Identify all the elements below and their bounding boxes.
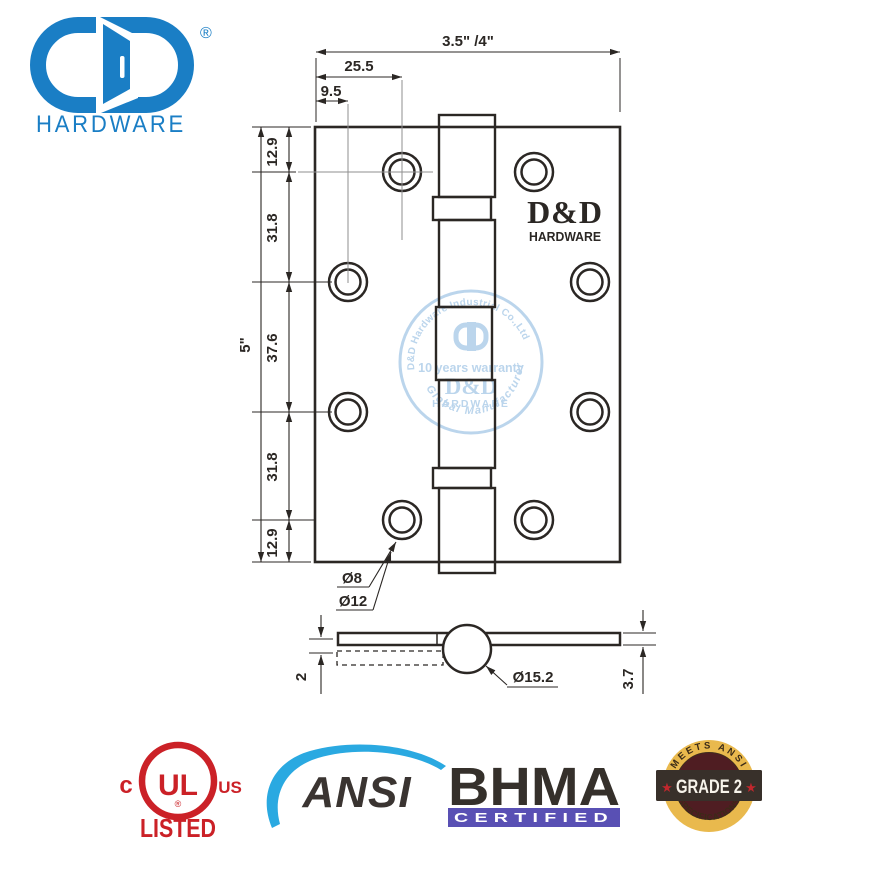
ul-mark: UL: [158, 769, 198, 802]
watermark-brand: D&D: [445, 374, 497, 399]
bhma-badge: BHMA CERTIFIED: [442, 750, 627, 835]
screw-hole: [571, 393, 609, 431]
hinge-section-view: Ø15.2 2 3.7: [293, 610, 656, 694]
grade-2-seal: MEETS ANSI SPECIFICATIONS ★ ★ GRADE 2: [654, 733, 769, 841]
ansi-label: ANSI: [301, 768, 411, 817]
screw-hole: [571, 263, 609, 301]
screw-hole: [329, 393, 367, 431]
dim-segment-4-label: 31.8: [264, 452, 281, 481]
screw-hole: [515, 501, 553, 539]
ul-suffix-us: US: [218, 778, 242, 797]
grade-2-label: GRADE 2: [676, 777, 742, 798]
dim-segment-2-label: 31.8: [264, 213, 281, 242]
hole-inner-dia-label: Ø8: [342, 570, 362, 587]
watermark-stamp: D&D Hardware Industrial Co.,Ltd Global M…: [392, 282, 548, 433]
screw-hole: [383, 501, 421, 539]
technical-drawing-page: ® HARDWARE D&D Hardware Industrial Co.,L…: [0, 0, 886, 886]
dim-25-5-label: 25.5: [344, 58, 373, 75]
dim-overall-height-label: 5": [237, 337, 254, 352]
screw-hole: [515, 153, 553, 191]
ul-prefix-c: c: [119, 772, 132, 799]
ul-registered-mark: ®: [175, 799, 182, 809]
watermark-tagline: 10 years warranty: [418, 361, 524, 375]
dim-segment-3-label: 37.6: [264, 333, 281, 362]
folded-leaf-dashed: [337, 651, 443, 665]
centerlines: [298, 80, 433, 283]
ul-listed-badge: UL UL ® c US LISTED: [90, 737, 260, 847]
barrel-section: [443, 625, 491, 673]
dim-9-5-label: 9.5: [321, 83, 342, 100]
leaf-gap-label: 2: [293, 673, 310, 681]
dim-overall-width-label: 3.5" /4": [442, 33, 494, 50]
star-icon: ★: [661, 780, 673, 795]
barrel-dia-label: Ø15.2: [513, 669, 554, 686]
dim-segment-1-label: 12.9: [264, 137, 281, 166]
dim-segment-5-label: 12.9: [264, 528, 281, 557]
plate-brand-text: D&D: [527, 194, 603, 230]
watermark-mini-logo: [456, 322, 486, 351]
star-icon: ★: [745, 780, 757, 795]
leaf-thickness-label: 3.7: [620, 669, 637, 690]
plate-brand-sub-text: HARDWARE: [529, 229, 601, 244]
watermark-brand-sub: HARDWARE: [432, 398, 510, 410]
ansi-badge: ANSI: [248, 738, 458, 838]
bhma-certified-label: CERTIFIED: [454, 811, 614, 825]
hole-outer-dia-label: Ø12: [339, 593, 367, 610]
ul-listed-label: LISTED: [140, 813, 216, 843]
